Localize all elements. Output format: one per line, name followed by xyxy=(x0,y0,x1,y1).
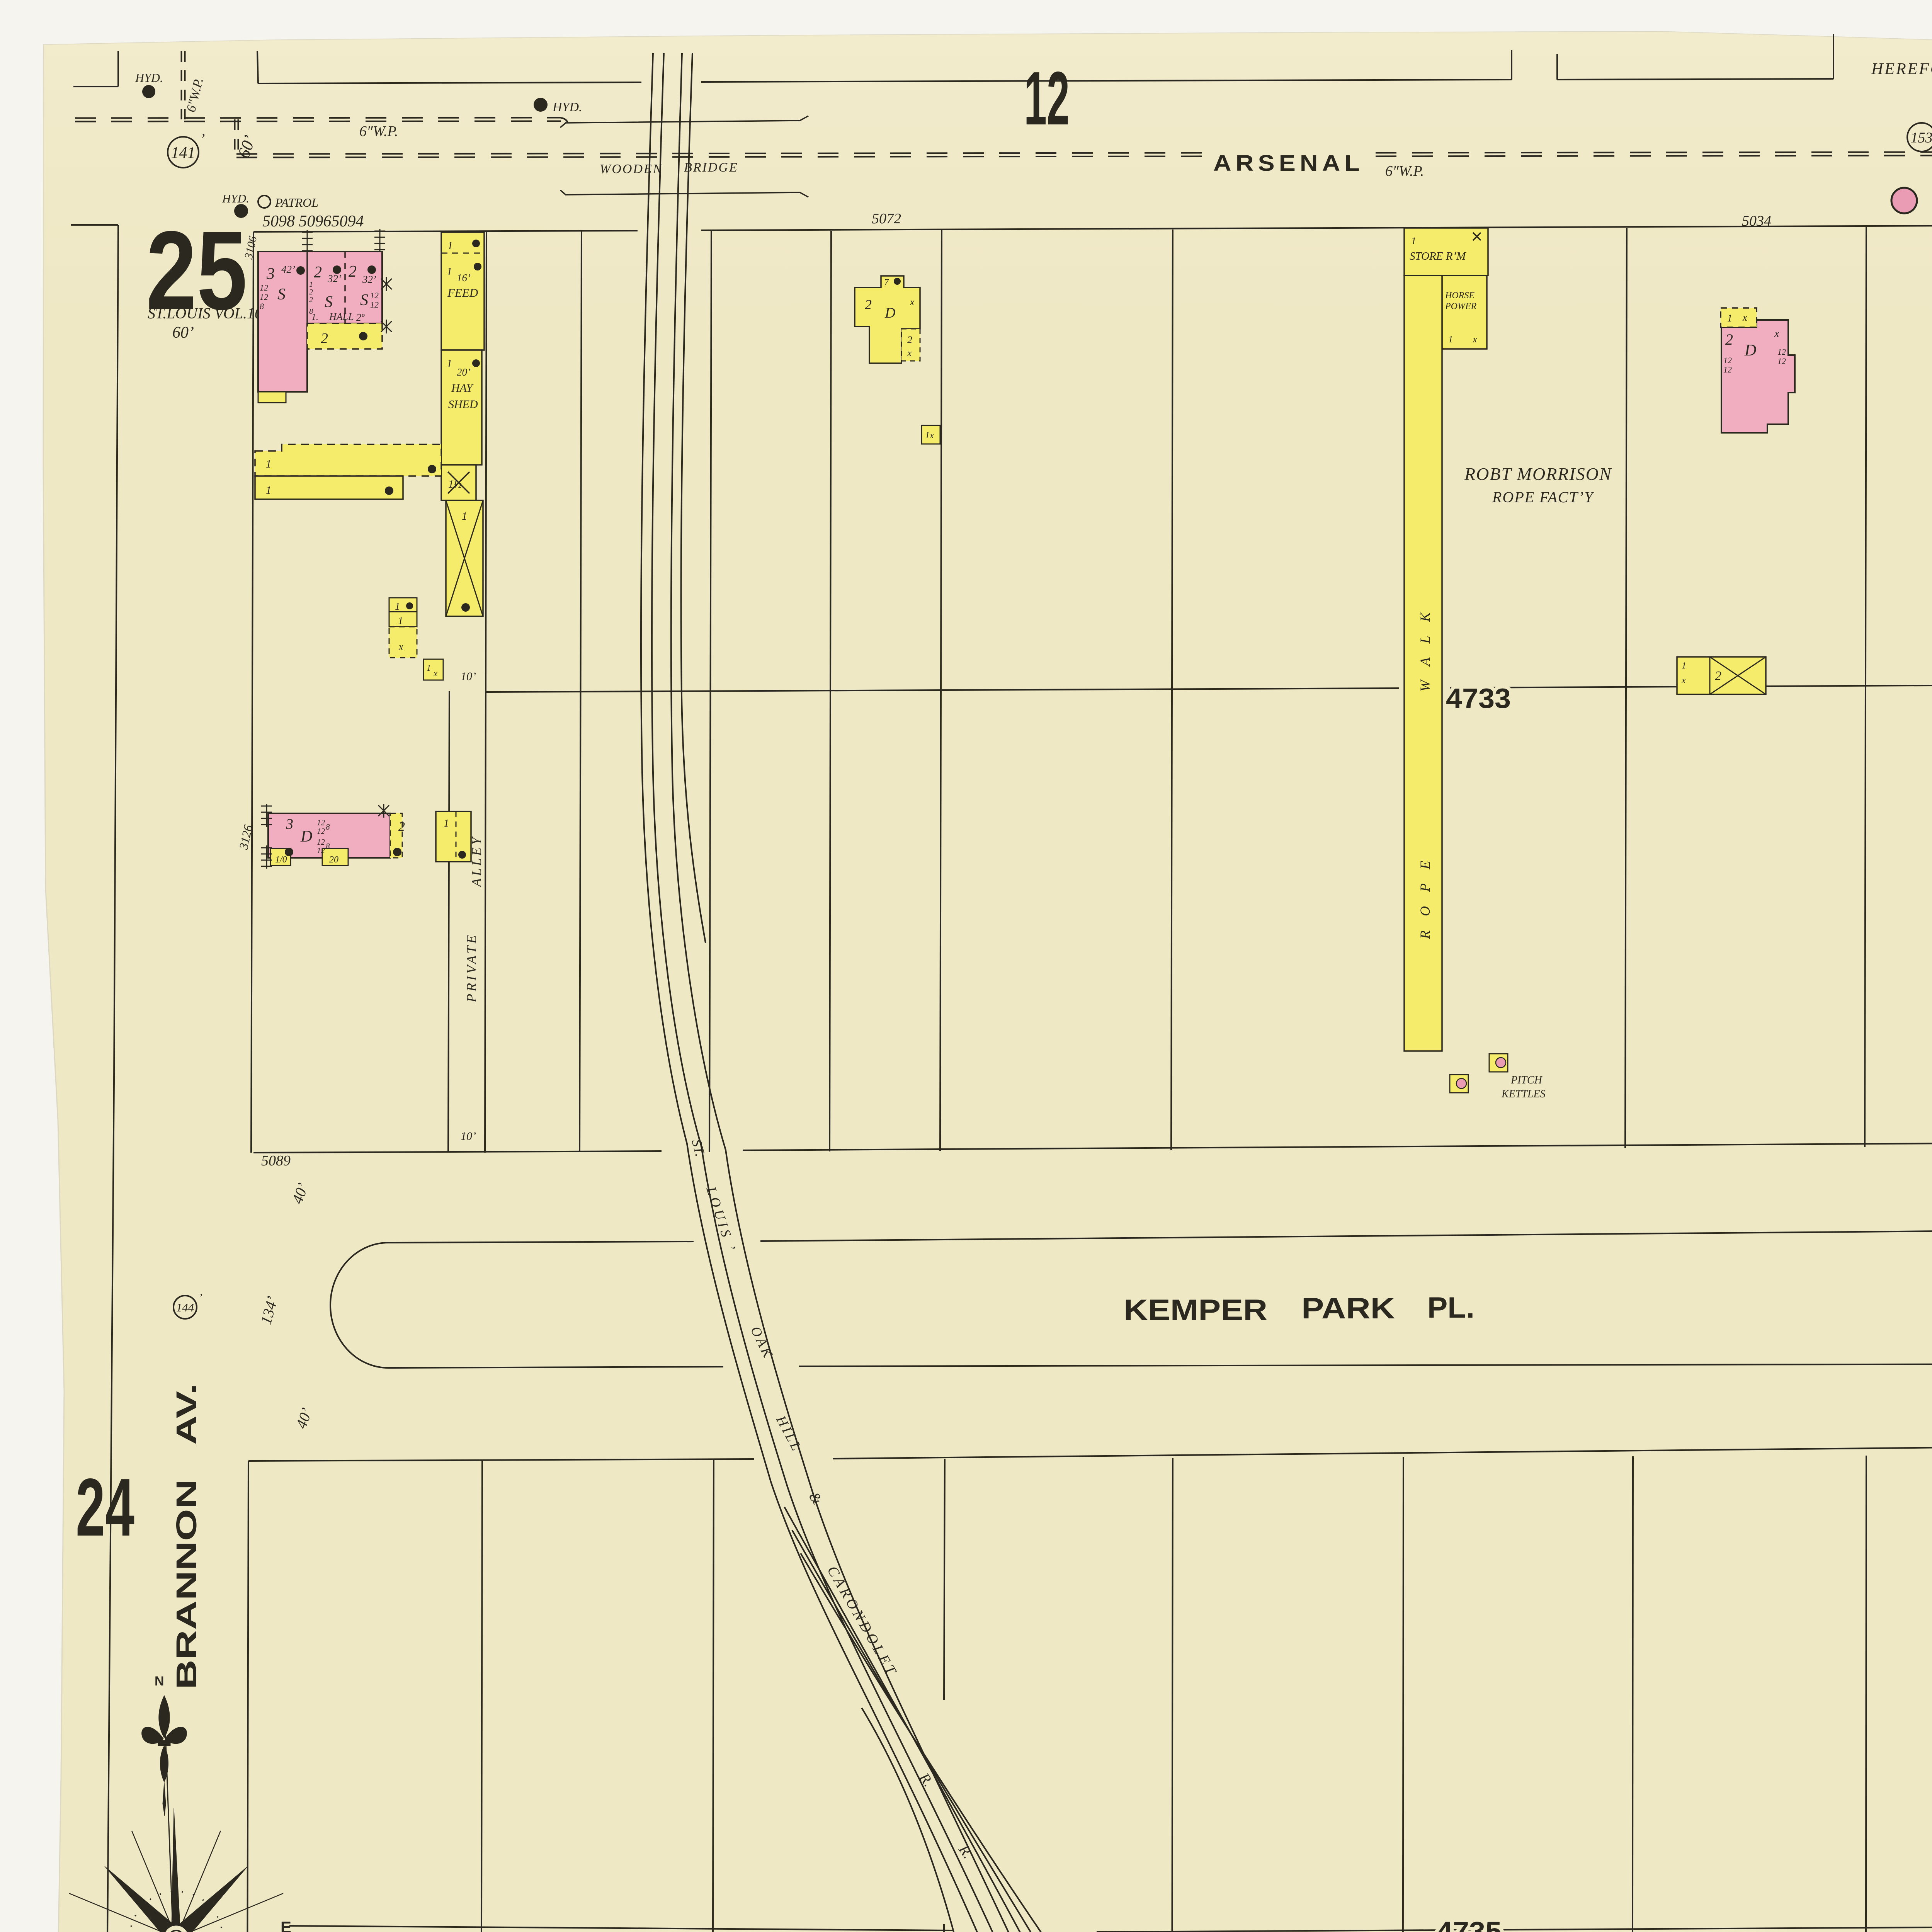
svg-text:1.: 1. xyxy=(311,312,318,322)
svg-text:FEED: FEED xyxy=(447,286,478,299)
svg-text:12: 12 xyxy=(1777,347,1786,357)
svg-text:12: 12 xyxy=(1777,356,1786,366)
svg-text:20: 20 xyxy=(329,855,338,865)
svg-text:5089: 5089 xyxy=(261,1153,291,1169)
svg-text:6″W.P.: 6″W.P. xyxy=(1385,163,1424,179)
svg-text:1: 1 xyxy=(1727,313,1732,324)
svg-text:12: 12 xyxy=(1723,365,1732,374)
svg-text:HYD.: HYD. xyxy=(135,71,163,85)
svg-text:ROBT MORRISON: ROBT MORRISON xyxy=(1464,464,1612,484)
svg-text:2: 2 xyxy=(1715,669,1721,683)
svg-text:1: 1 xyxy=(427,663,431,673)
svg-text:BRANNON AV.: BRANNON AV. xyxy=(170,1383,202,1689)
svg-text:PITCH: PITCH xyxy=(1510,1074,1543,1086)
svg-text:1: 1 xyxy=(266,485,271,497)
svg-text:2: 2 xyxy=(865,297,872,312)
svg-text:16’: 16’ xyxy=(457,272,471,284)
svg-text:ST.LOUIS VOL.10: ST.LOUIS VOL.10 xyxy=(148,304,262,322)
svg-text:D: D xyxy=(1744,342,1756,359)
svg-text:2: 2 xyxy=(309,296,313,304)
svg-text:4735: 4735 xyxy=(1437,1916,1502,1932)
svg-text:12: 12 xyxy=(317,818,325,827)
svg-text:ARSENAL: ARSENAL xyxy=(1213,151,1364,176)
svg-text:1/0: 1/0 xyxy=(275,855,287,865)
svg-text:D: D xyxy=(300,828,312,845)
svg-text:SHED: SHED xyxy=(448,398,478,411)
svg-text:x: x xyxy=(907,347,912,359)
svg-text:12: 12 xyxy=(1723,355,1732,365)
svg-text:2: 2 xyxy=(349,263,357,281)
svg-text:1: 1 xyxy=(447,358,452,370)
svg-text:BRIDGE: BRIDGE xyxy=(684,160,738,175)
svg-text:N: N xyxy=(155,1674,164,1689)
svg-text:2: 2 xyxy=(314,264,322,281)
svg-text:PRIVATE: PRIVATE xyxy=(464,933,479,1003)
svg-text:x: x xyxy=(1473,335,1477,345)
svg-text:2: 2 xyxy=(398,820,405,834)
svg-text:x: x xyxy=(1774,328,1779,340)
svg-text:24: 24 xyxy=(76,1461,134,1553)
svg-text:144: 144 xyxy=(176,1301,194,1314)
svg-text:2: 2 xyxy=(321,330,328,347)
svg-text:S: S xyxy=(325,293,333,311)
svg-text:HYD.: HYD. xyxy=(552,100,582,114)
svg-text:S: S xyxy=(360,291,368,309)
svg-text:12: 12 xyxy=(1024,56,1070,141)
svg-text:3: 3 xyxy=(286,816,293,832)
svg-text:1: 1 xyxy=(395,601,400,612)
svg-text:6″W.P.: 6″W.P. xyxy=(359,123,398,139)
svg-text:141: 141 xyxy=(171,144,196,162)
svg-text:8: 8 xyxy=(326,822,330,832)
svg-text:’: ’ xyxy=(200,131,205,147)
svg-text:12: 12 xyxy=(260,283,268,293)
svg-text:HORSE: HORSE xyxy=(1445,291,1475,301)
svg-text:1: 1 xyxy=(462,510,467,522)
svg-text:4733: 4733 xyxy=(1446,683,1511,714)
svg-text:12: 12 xyxy=(260,292,268,302)
svg-text:10’: 10’ xyxy=(461,1130,476,1143)
svg-text:1x: 1x xyxy=(925,430,934,440)
svg-text:5098 50965094: 5098 50965094 xyxy=(262,213,364,230)
svg-text:2: 2 xyxy=(309,288,313,296)
svg-text:10’: 10’ xyxy=(461,670,476,683)
svg-text:PARK: PARK xyxy=(1301,1292,1395,1325)
svg-text:8: 8 xyxy=(326,842,330,851)
svg-text:HAY: HAY xyxy=(451,382,474,395)
svg-text:1: 1 xyxy=(447,240,453,252)
svg-text:1: 1 xyxy=(1411,235,1416,247)
svg-text:60’: 60’ xyxy=(172,324,194,342)
svg-text:32’: 32’ xyxy=(327,273,342,284)
svg-text:20’: 20’ xyxy=(457,366,471,378)
svg-text:STORE R’M: STORE R’M xyxy=(1410,250,1466,262)
svg-text:x: x xyxy=(1742,312,1747,323)
svg-text:12: 12 xyxy=(370,291,379,300)
svg-text:3: 3 xyxy=(266,265,275,283)
svg-text:7: 7 xyxy=(884,277,889,287)
svg-text:12: 12 xyxy=(370,300,379,310)
svg-text:1: 1 xyxy=(309,280,313,289)
svg-text:12: 12 xyxy=(317,837,325,847)
svg-text:HALL: HALL xyxy=(329,311,354,322)
svg-text:12: 12 xyxy=(317,846,325,855)
svg-text:HEREFORD: HEREFORD xyxy=(1871,60,1932,78)
svg-text:x: x xyxy=(398,641,403,652)
svg-text:1: 1 xyxy=(444,818,449,830)
svg-text:1: 1 xyxy=(266,458,271,470)
svg-text:x: x xyxy=(910,296,915,308)
svg-text:1: 1 xyxy=(1682,661,1686,671)
svg-text:HYD.: HYD. xyxy=(222,192,249,205)
svg-text:x: x xyxy=(433,668,437,678)
svg-text:ROPE FACT’Y: ROPE FACT’Y xyxy=(1492,488,1594,506)
svg-text:S: S xyxy=(277,286,286,303)
svg-text:KEMPER: KEMPER xyxy=(1124,1294,1267,1327)
svg-text:1: 1 xyxy=(1448,335,1453,345)
svg-text:R O P E: R O P E xyxy=(1417,855,1433,939)
svg-text:x: x xyxy=(1681,675,1686,685)
svg-text:8: 8 xyxy=(260,301,264,311)
svg-text:12: 12 xyxy=(317,827,325,836)
svg-text:153: 153 xyxy=(1911,130,1932,146)
svg-text:1½: 1½ xyxy=(448,478,462,490)
svg-text:1: 1 xyxy=(447,266,452,278)
svg-text:E: E xyxy=(281,1918,291,1932)
svg-text:WOODEN: WOODEN xyxy=(600,162,663,176)
svg-text:W A L K: W A L K xyxy=(1417,607,1433,692)
svg-text:2: 2 xyxy=(1725,331,1733,348)
svg-text:42’: 42’ xyxy=(281,264,295,275)
svg-text:POWER: POWER xyxy=(1445,301,1477,311)
svg-text:D: D xyxy=(884,305,895,321)
svg-text:PATROL: PATROL xyxy=(275,196,318,209)
svg-text:PL.: PL. xyxy=(1427,1291,1475,1324)
svg-text:5072: 5072 xyxy=(872,211,901,227)
svg-text:2: 2 xyxy=(907,334,912,345)
svg-text:’: ’ xyxy=(199,1292,202,1303)
svg-text:1: 1 xyxy=(398,615,403,626)
svg-text:32’: 32’ xyxy=(362,274,376,285)
svg-text:KETTLES: KETTLES xyxy=(1501,1088,1546,1100)
svg-text:2º: 2º xyxy=(356,312,365,323)
